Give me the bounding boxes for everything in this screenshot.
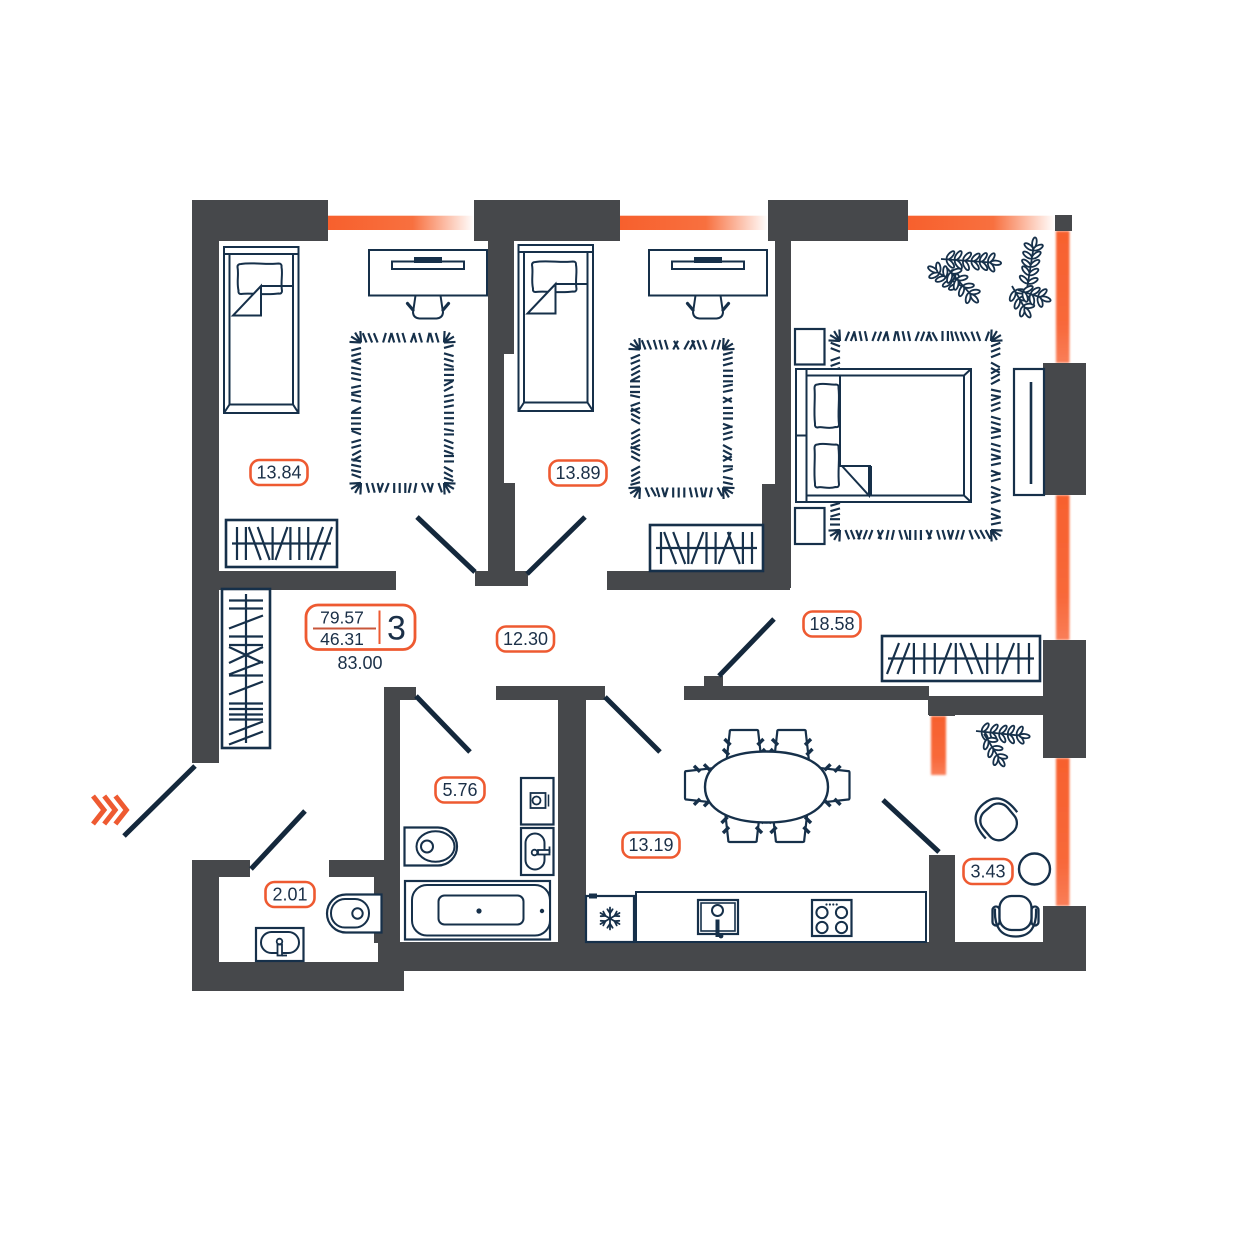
svg-text:13.84: 13.84 <box>256 463 301 483</box>
svg-text:3.43: 3.43 <box>970 862 1005 882</box>
svg-text:46.31: 46.31 <box>320 629 364 649</box>
svg-text:2.01: 2.01 <box>272 885 307 905</box>
svg-text:13.89: 13.89 <box>555 463 600 483</box>
svg-text:13.19: 13.19 <box>628 835 673 855</box>
svg-text:79.57: 79.57 <box>320 608 364 628</box>
svg-text:18.58: 18.58 <box>809 614 854 634</box>
svg-text:3: 3 <box>387 610 406 648</box>
svg-text:83.00: 83.00 <box>337 653 382 673</box>
svg-text:5.76: 5.76 <box>442 780 477 800</box>
svg-text:12.30: 12.30 <box>503 629 548 649</box>
